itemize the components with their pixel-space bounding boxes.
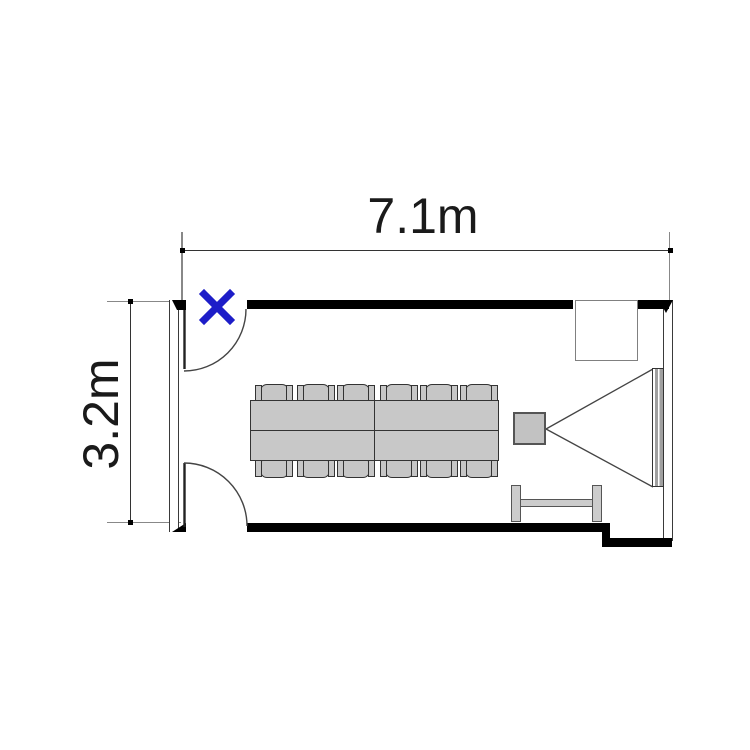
chair-back <box>301 460 330 478</box>
dimension-endpoint <box>180 248 185 253</box>
door-swing-arc-bottom <box>184 463 247 526</box>
height-dimension-label: 3.2m <box>75 334 125 494</box>
dimension-endpoint <box>668 248 673 253</box>
top-wall-right-segment <box>638 300 669 309</box>
chair-back <box>465 460 494 478</box>
width-dimension-label: 7.1m <box>343 190 503 242</box>
projector <box>513 412 546 445</box>
bottom-wall <box>247 523 603 532</box>
chair <box>337 458 375 478</box>
chair <box>420 458 458 478</box>
bottom-wall-right-segment <box>602 538 672 547</box>
projection-cone <box>546 369 653 487</box>
chair-back <box>425 460 454 478</box>
dimension-endpoint <box>128 520 133 525</box>
projection-screen <box>652 368 664 487</box>
width-extension-line-left <box>181 232 182 300</box>
side-table-bar <box>511 499 602 507</box>
width-dimension-line <box>182 250 670 252</box>
chair-back <box>385 460 414 478</box>
x-marker-icon <box>204 294 230 320</box>
top-wall <box>247 300 573 309</box>
table-seam-vertical <box>374 401 375 460</box>
chair-back <box>260 460 289 478</box>
floor-plan: 7.1m 3.2m <box>0 0 750 750</box>
wall-cabinet <box>575 300 638 361</box>
chair <box>460 458 498 478</box>
chair-back <box>341 460 370 478</box>
chair <box>255 458 293 478</box>
left-wall <box>169 300 179 532</box>
door-swing-arc-top <box>184 309 246 371</box>
chair <box>380 458 418 478</box>
right-wall <box>663 300 673 541</box>
conference-table <box>250 400 499 461</box>
dimension-endpoint <box>128 299 133 304</box>
chair <box>297 458 335 478</box>
side-table-leg <box>511 485 521 522</box>
side-table-leg <box>592 485 602 522</box>
height-dimension-line <box>130 301 132 522</box>
